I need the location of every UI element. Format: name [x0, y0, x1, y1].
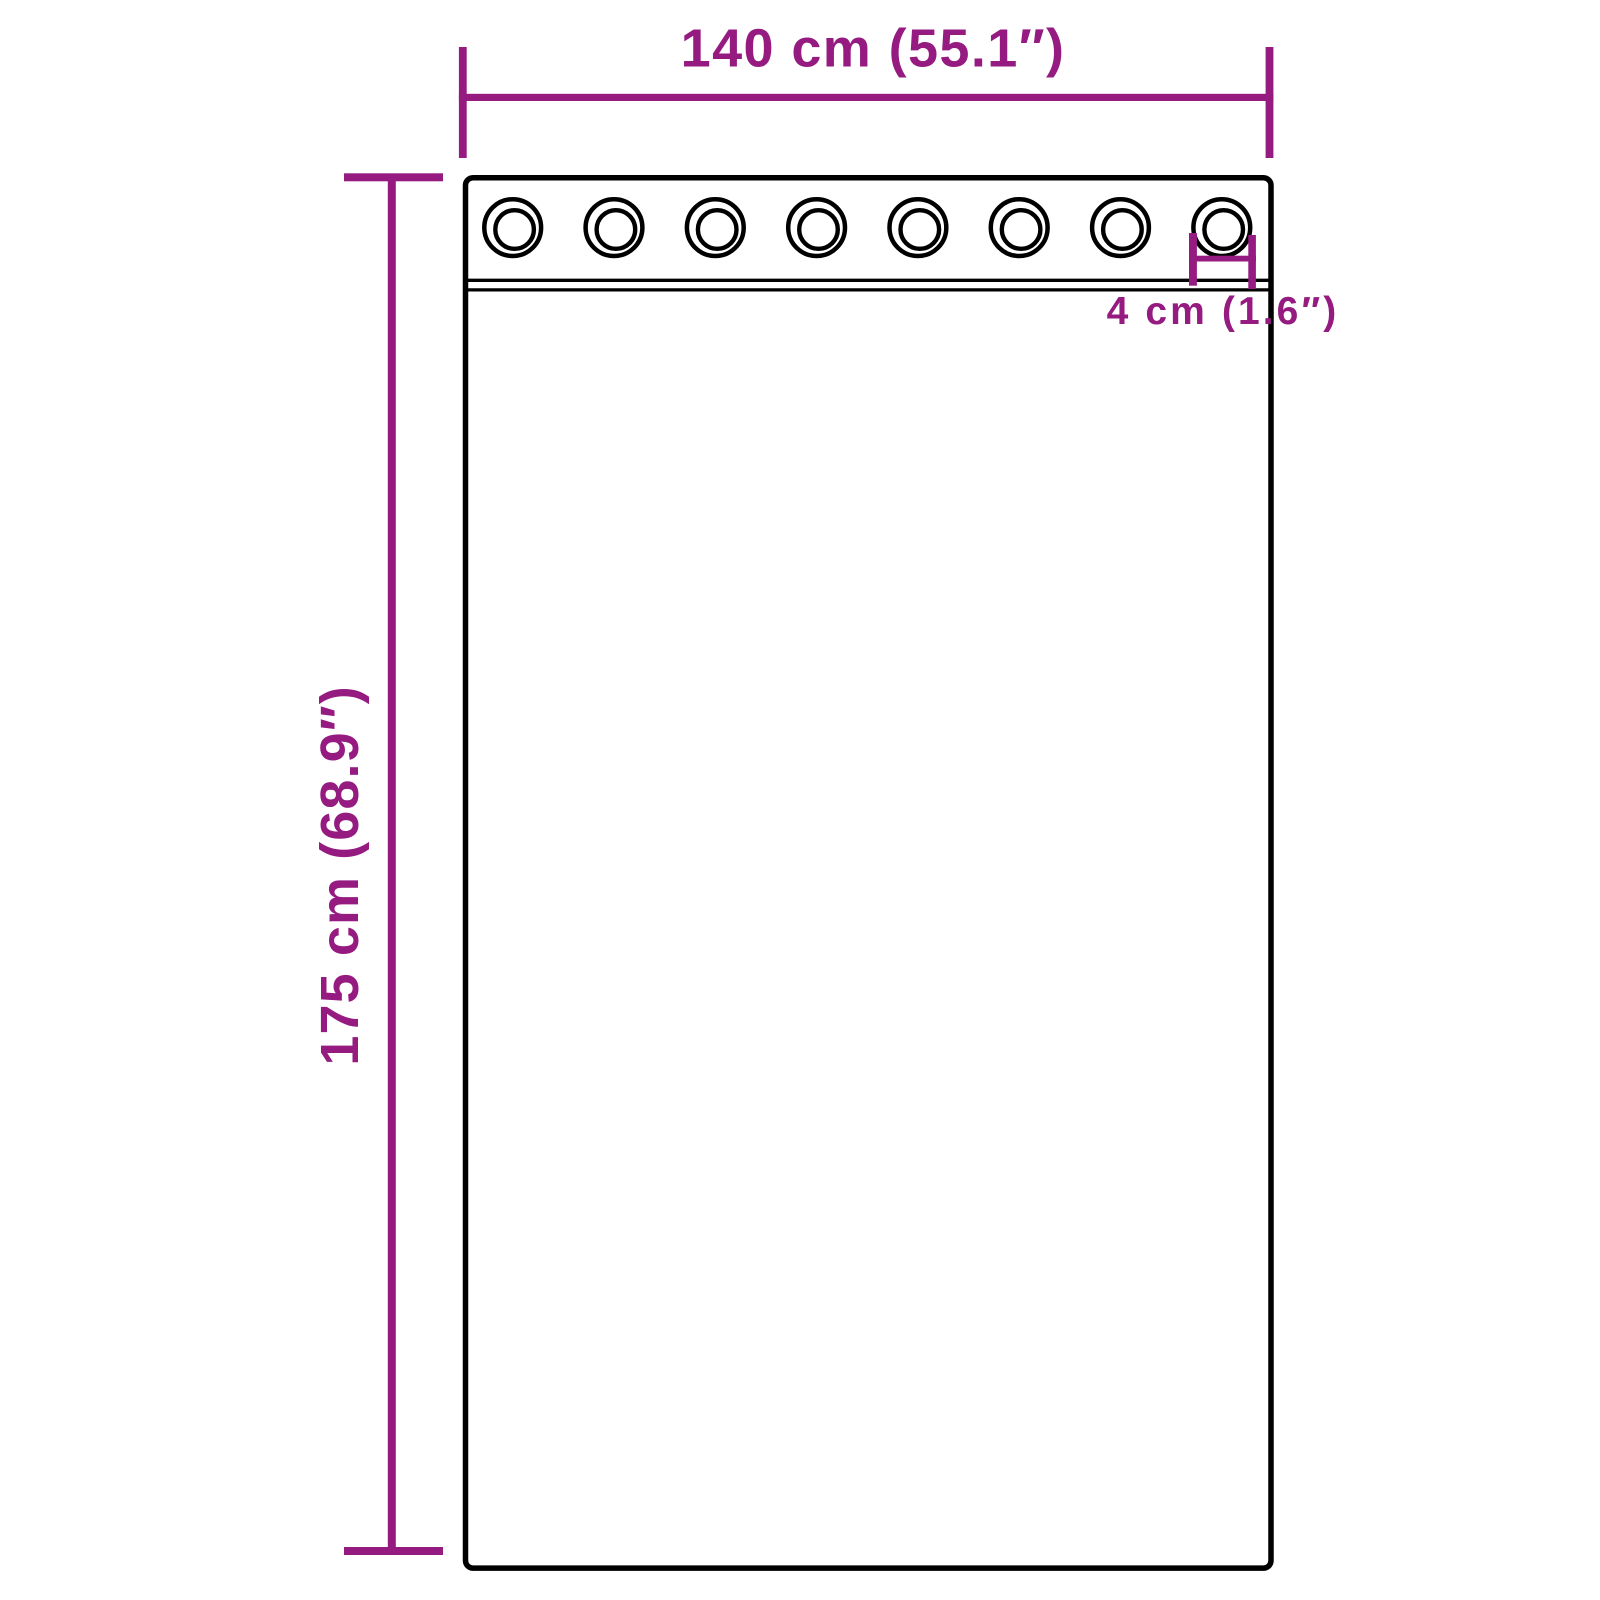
- svg-text:4 cm (1.6″): 4 cm (1.6″): [1107, 290, 1340, 333]
- svg-text:175 cm (68.9″): 175 cm (68.9″): [310, 685, 370, 1065]
- svg-text:140 cm (55.1″): 140 cm (55.1″): [681, 18, 1066, 78]
